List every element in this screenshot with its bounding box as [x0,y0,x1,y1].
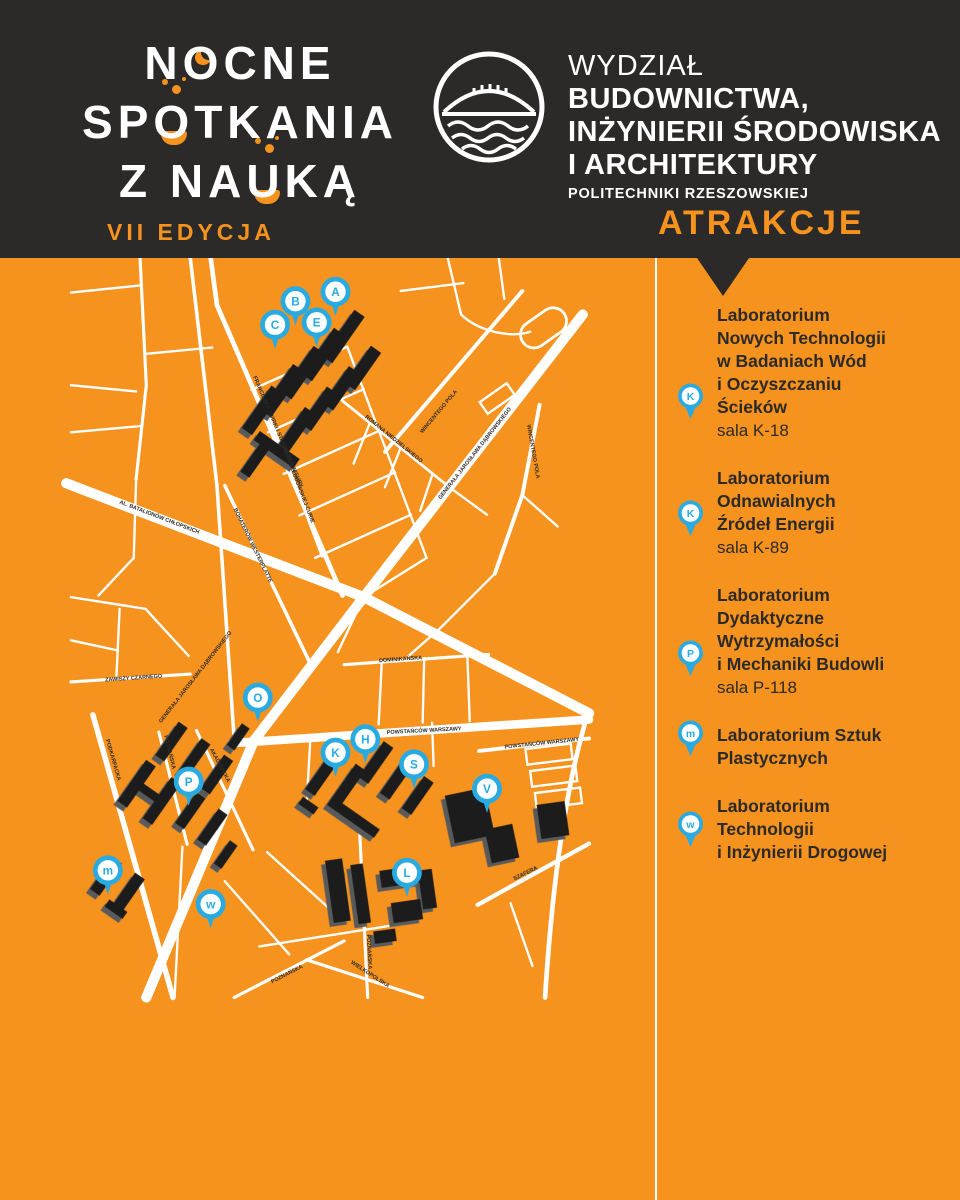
street-label: GENERAŁA JAROSŁAWA DĄBROWSKIEGO [158,630,234,725]
attractions-heading: ATRAKCJE [658,204,865,243]
pin-letter: B [291,295,300,308]
street-label: AL. BATALIONÓW CHŁOPSKICH [118,498,200,536]
attraction-title-line: Laboratorium [717,795,887,818]
event-logo-line-2: SPOTKANIA [55,93,425,152]
attraction-item: m Laboratorium Sztuk Plastycznych [675,724,950,770]
attraction-title-line: w Badaniach Wód [717,350,886,373]
logo-text: SP [82,96,153,148]
attraction-title-line: Nowych Technologii [717,327,886,350]
attraction-text: Laboratorium Nowych Technologii w Badani… [717,304,886,442]
location-pin-icon: m [675,718,706,759]
pin-letter: H [361,734,370,747]
faculty-line: WYDZIAŁ [568,50,941,83]
attraction-title-line: Plastycznych [717,747,881,770]
event-logo-line-1: NOCNE [55,34,425,93]
location-pin-icon: w [675,809,706,850]
attraction-title-line: Ścieków [717,396,886,419]
pin-letter: K [331,747,340,760]
pin-letter: S [410,759,418,772]
attraction-item: K Laboratorium Nowych Technologii w Bada… [675,304,950,442]
pin-column: w [675,795,717,864]
attractions-sidebar: K Laboratorium Nowych Technologii w Bada… [657,258,960,1200]
attraction-room: sala K-89 [717,536,836,559]
pin-column: K [675,467,717,559]
event-logo-line-3: Z NAUKĄ [55,152,425,211]
pin-letter: m [103,865,113,878]
attraction-title-line: Technologii [717,818,887,841]
faculty-line: INŻYNIERII ŚRODOWISKA [568,116,941,149]
header: NOCNE SPOTKANIA Z NAUKĄ VII EDYCJA WYDZI… [0,0,960,258]
attraction-title-line: Laboratorium [717,584,884,607]
campus-map: FRANCISZKA ŻWIRKI I STANISŁAWA WIGURY MA… [0,258,660,1200]
flask-letter: O [153,93,194,152]
pin-letter: E [313,317,321,330]
speech-pointer-triangle [697,258,749,296]
street-label: DOMINIKAŃSKA [379,653,423,664]
pin-column: K [675,304,717,442]
pin-letter: m [686,728,695,740]
pin-letter: L [403,867,410,880]
pin-letter: w [685,819,695,831]
attraction-title-line: Odnawialnych [717,490,836,513]
faculty-line: POLITECHNIKI RZESZOWSKIEJ [568,186,941,202]
attraction-title-line: Laboratorium [717,304,886,327]
pin-letter: K [687,391,695,403]
map-pin-c: C [262,312,287,349]
attraction-room: sala P-118 [717,676,884,699]
map-pin-a: A [323,279,348,316]
attraction-title-line: Laboratorium [717,467,836,490]
attraction-title-line: Laboratorium Sztuk [717,724,881,747]
location-pin-icon: P [675,638,706,679]
pin-letter: A [331,286,340,299]
logo-text: CNE [223,37,335,89]
pin-letter: V [483,783,491,796]
location-pin-icon: K [675,498,706,539]
attraction-title-line: Dydaktyczne [717,607,884,630]
map-pin-w: w [198,891,223,928]
pin-letter: O [253,692,262,705]
logo-text: TKANIA [194,96,398,148]
pin-letter: K [687,508,695,520]
map-svg: FRANCISZKA ŻWIRKI I STANISŁAWA WIGURY MA… [0,258,660,1200]
faculty-name: WYDZIAŁ BUDOWNICTWA, INŻYNIERII ŚRODOWIS… [568,48,941,202]
streets-layer [66,258,589,997]
street-label: WINCENTEGO POLA [419,389,459,435]
attraction-title-line: i Oczyszczaniu [717,373,886,396]
bubbles-icon [251,136,288,154]
street-label: POZNAŃSKA [269,962,304,985]
attraction-item: K Laboratorium Odnawialnych Źródeł Energ… [675,467,950,559]
pin-letter: w [205,898,216,911]
flask-letter: U [246,152,284,211]
pin-column: m [675,724,717,770]
logo-text: U [246,155,284,207]
map-pin-l: L [394,860,419,897]
pin-letter: P [687,648,694,660]
attraction-item: P Laboratorium Dydaktyczne Wytrzymałości… [675,584,950,699]
street-label: ZAWISZY CZARNEGO [105,674,163,684]
location-pin-icon: K [675,381,706,422]
street-label: GENERAŁA JAROSŁAWA DĄBROWSKIEGO [438,406,514,501]
attraction-text: Laboratorium Odnawialnych Źródeł Energii… [717,467,836,559]
attraction-title-line: Źródeł Energii [717,513,836,536]
faculty-bridge-logo-icon [430,48,548,166]
logo-text: Z NA [119,155,246,207]
logo-text: KĄ [285,155,361,207]
bubbles-icon [158,77,195,95]
attraction-item: w Laboratorium Technologii i Inżynierii … [675,795,950,864]
faculty-line: I ARCHITEKTURY [568,149,941,182]
pin-letter: P [185,776,193,789]
attraction-text: Laboratorium Dydaktyczne Wytrzymałości i… [717,584,884,699]
pin-column: P [675,584,717,699]
edition-label: VII EDYCJA [107,219,425,246]
pin-letter: C [271,319,280,332]
faculty-line: BUDOWNICTWA, [568,83,941,116]
attraction-text: Laboratorium Technologii i Inżynierii Dr… [717,795,887,864]
faculty-block: WYDZIAŁ BUDOWNICTWA, INŻYNIERII ŚRODOWIS… [430,48,941,202]
event-logo: NOCNE SPOTKANIA Z NAUKĄ VII EDYCJA [55,34,425,246]
attraction-title-line: Wytrzymałości [717,630,884,653]
attraction-title-line: i Inżynierii Drogowej [717,841,887,864]
street-label: ROMANA NIEDZIELSKIEGO [363,414,424,465]
logo-text: O [153,96,194,148]
attraction-room: sala K-18 [717,419,886,442]
attraction-title-line: i Mechaniki Budowli [717,653,884,676]
attraction-text: Laboratorium Sztuk Plastycznych [717,724,881,770]
